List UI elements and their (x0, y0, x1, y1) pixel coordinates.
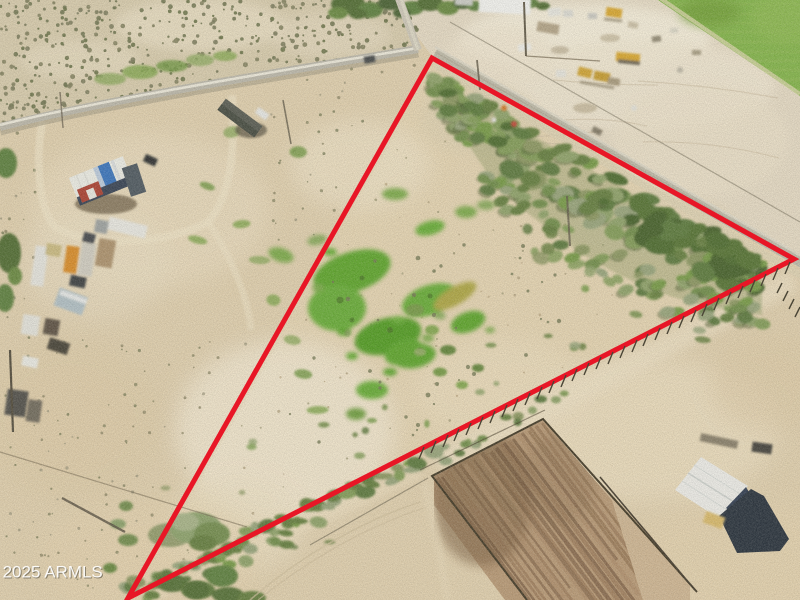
svg-text:2025 ARMLS: 2025 ARMLS (3, 563, 103, 582)
